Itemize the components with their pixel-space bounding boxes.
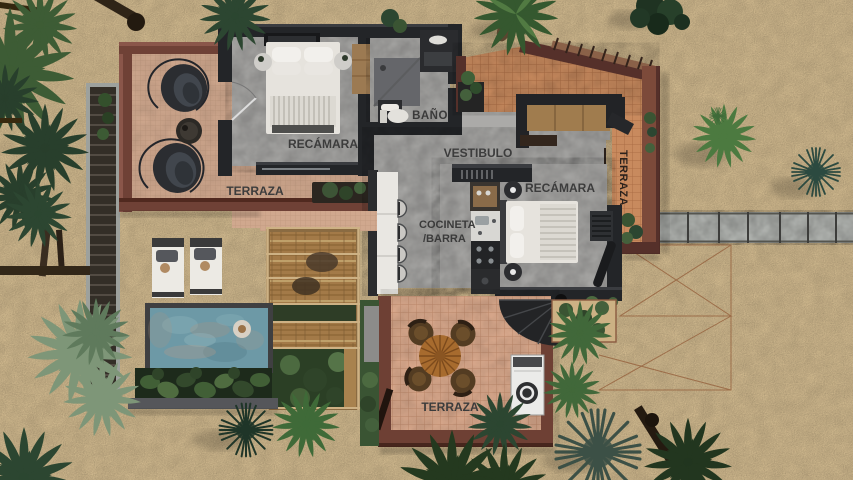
svg-text:RECÁMARA: RECÁMARA bbox=[525, 180, 595, 195]
svg-text:TERRAZA: TERRAZA bbox=[617, 150, 629, 206]
svg-text:TERRAZA: TERRAZA bbox=[421, 400, 479, 414]
svg-text:COCINETA: COCINETA bbox=[419, 219, 476, 231]
svg-text:/BARRA: /BARRA bbox=[423, 233, 466, 245]
svg-text:RECÁMARA: RECÁMARA bbox=[288, 136, 358, 151]
svg-text:VESTIBULO: VESTIBULO bbox=[444, 146, 513, 160]
svg-text:BAÑO: BAÑO bbox=[412, 109, 448, 122]
svg-text:TERRAZA: TERRAZA bbox=[226, 184, 284, 198]
